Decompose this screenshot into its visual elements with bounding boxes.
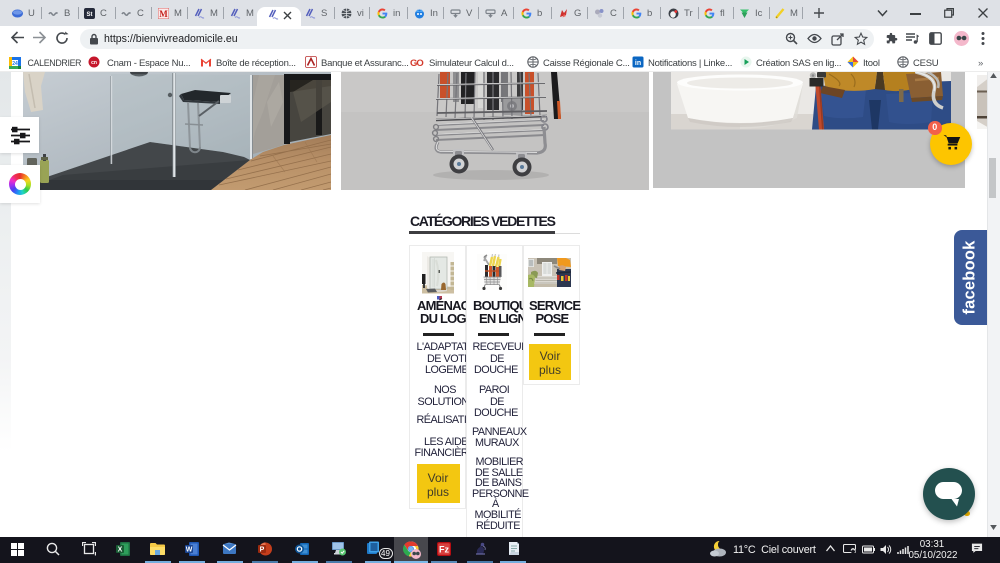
svg-text:W: W — [186, 547, 193, 554]
svg-text:24: 24 — [12, 60, 18, 66]
svg-text:P: P — [260, 547, 265, 554]
svg-text:X: X — [118, 547, 123, 554]
svg-text:St: St — [87, 12, 93, 18]
svg-text:M: M — [159, 9, 168, 19]
svg-text:Fz: Fz — [439, 545, 449, 555]
svg-text:in: in — [635, 60, 641, 67]
svg-text:cn: cn — [91, 60, 97, 66]
